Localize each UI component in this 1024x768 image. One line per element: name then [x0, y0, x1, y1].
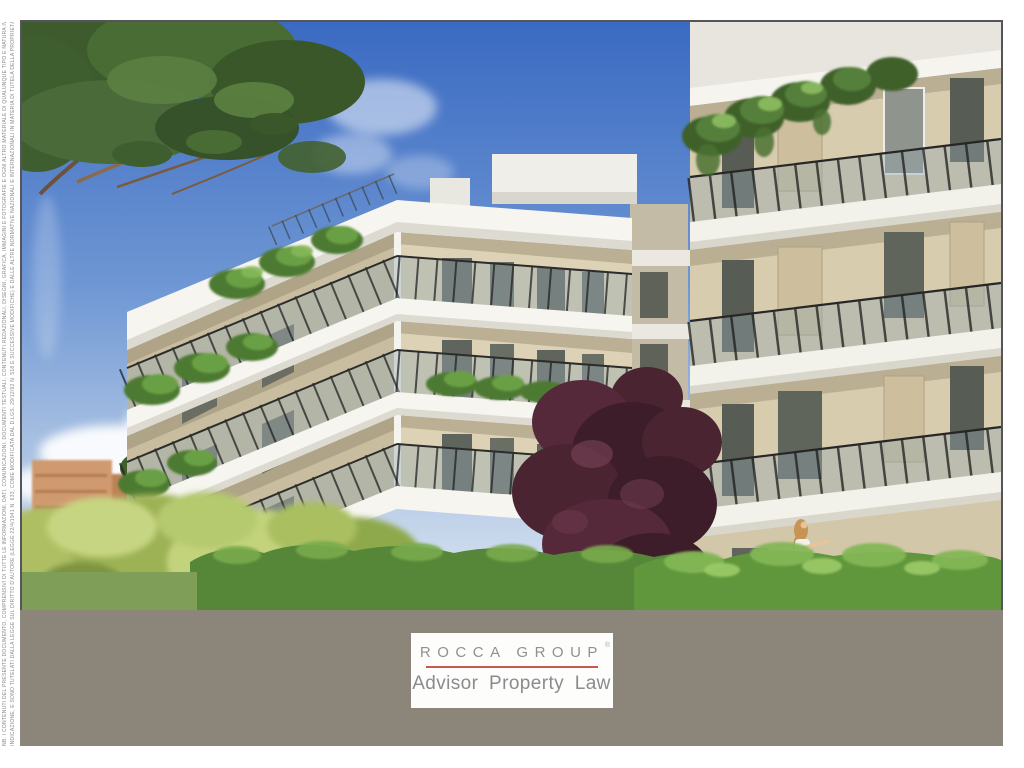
rocca-group-logo: ROCCA GROUP® Advisor Property Law: [411, 633, 613, 708]
logo-name: ROCCA GROUP®: [417, 644, 613, 661]
image-frame: ROCCA GROUP® Advisor Property Law: [20, 20, 1003, 746]
brochure-page: NB. I CONTENUTI DEL PRESENTE DOCUMENTO, …: [0, 0, 1024, 768]
registered-mark: ®: [605, 642, 610, 649]
right-building: [682, 22, 1001, 597]
rendering-scene: [22, 22, 1001, 610]
logo-name-text: ROCCA GROUP: [420, 644, 604, 661]
property-rendering: [20, 20, 1003, 610]
logo-divider: [426, 666, 598, 668]
copyright-disclaimer: NB. I CONTENUTI DEL PRESENTE DOCUMENTO, …: [2, 22, 19, 746]
brand-band: ROCCA GROUP® Advisor Property Law: [20, 610, 1003, 746]
lawn: [22, 572, 197, 610]
disclaimer-line-2: INDICAZIONE, E SONO TUTELATI DALLA LEGGE…: [10, 22, 18, 746]
disclaimer-line-1: NB. I CONTENUTI DEL PRESENTE DOCUMENTO, …: [2, 22, 10, 746]
logo-tagline: Advisor Property Law: [411, 673, 613, 695]
